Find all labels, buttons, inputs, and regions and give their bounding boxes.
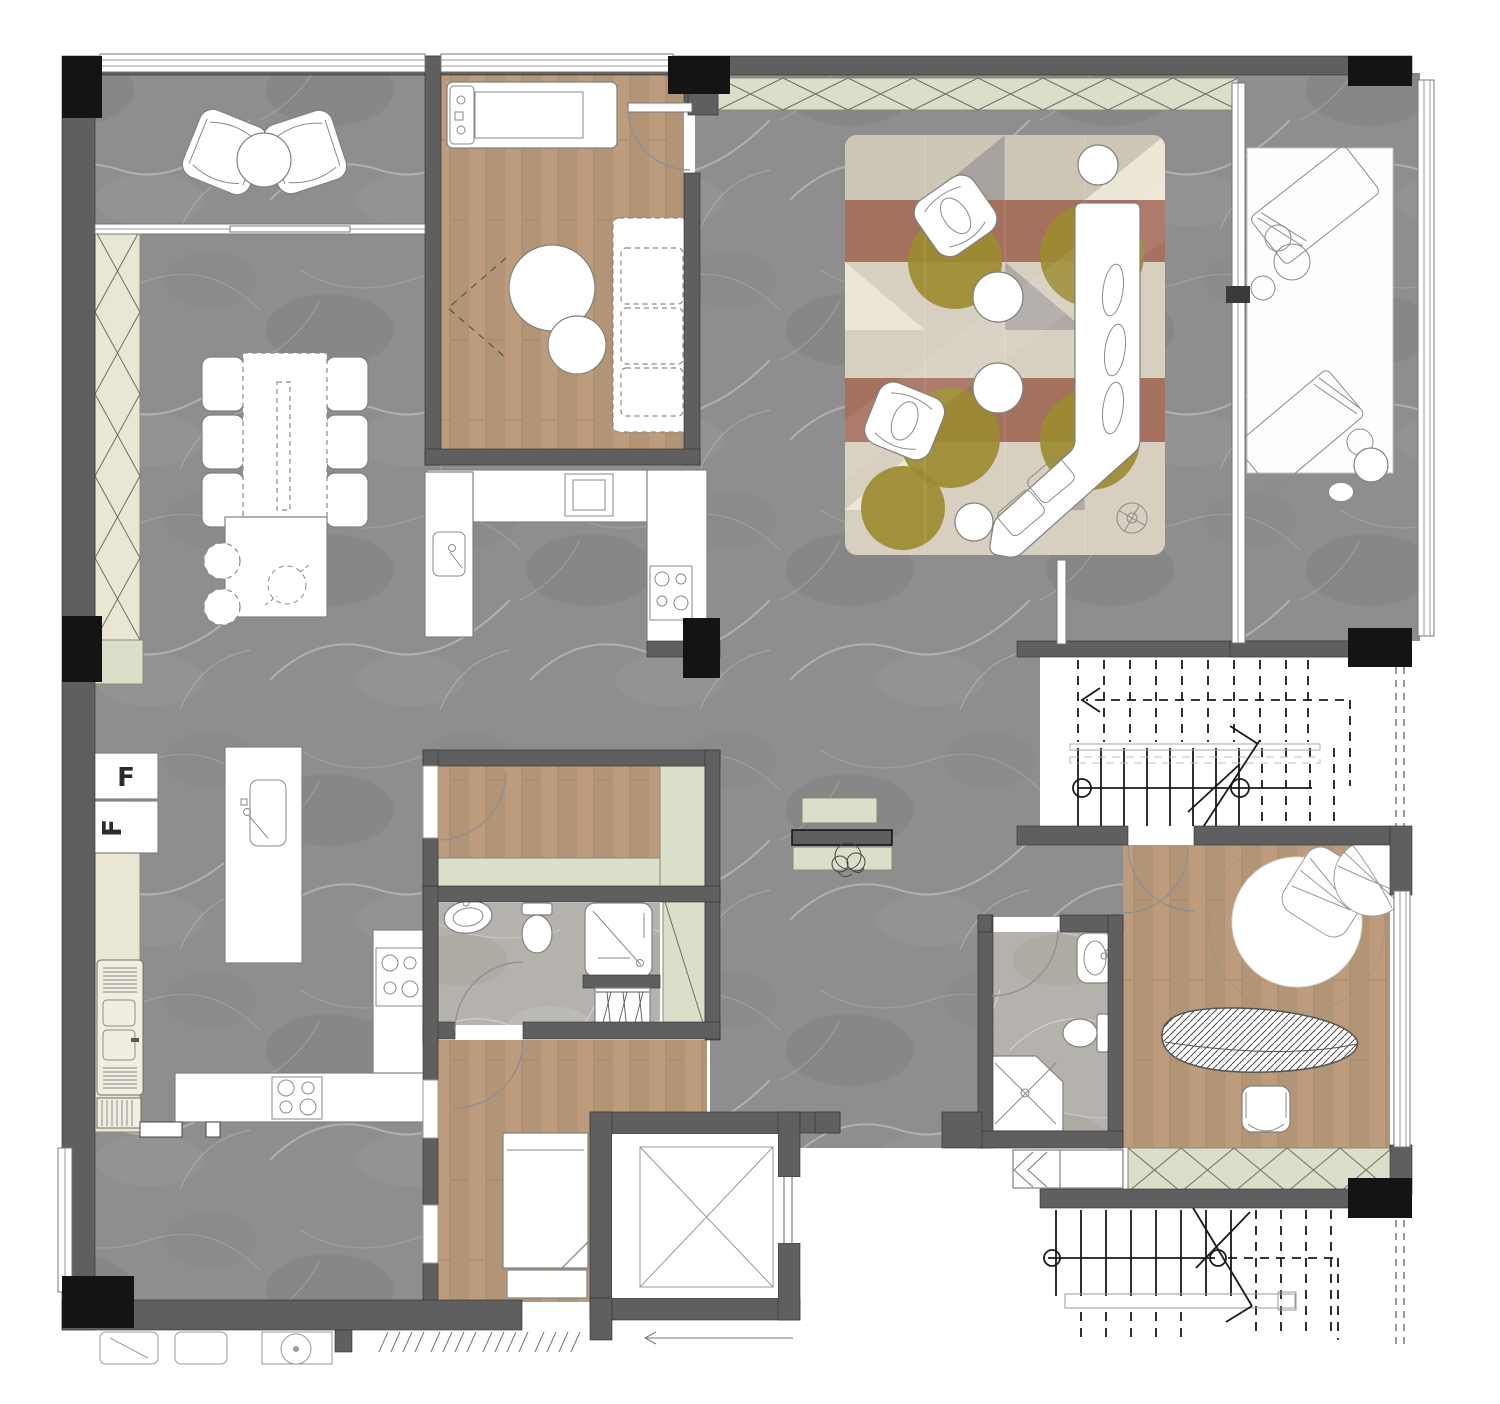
floor-plan-page: F F: [0, 0, 1500, 1404]
stool-icon: [1242, 1086, 1290, 1132]
hall-console: [792, 798, 892, 877]
window: [100, 54, 425, 72]
toilet-icon: [522, 903, 552, 953]
door-gap: [140, 1122, 182, 1137]
window: [1394, 891, 1410, 1147]
storage-strip-living-top: [718, 78, 1238, 110]
washing-machine-icon: [1013, 1150, 1123, 1188]
kitchen-island: [225, 747, 302, 963]
corner-shower-icon: [988, 1056, 1063, 1131]
fridge-freezer: F F: [94, 753, 158, 853]
window: [58, 1148, 72, 1292]
bedroom-bottom: [503, 1133, 588, 1298]
glass-screen: [1057, 560, 1066, 644]
door-gap: [423, 766, 438, 838]
balcony: [1235, 144, 1393, 501]
sofa-icon: [613, 218, 695, 432]
floor-plan-drawing: F F: [0, 0, 1500, 1404]
window: [441, 54, 673, 72]
pouf-icon: [548, 316, 606, 374]
appliance-tower: [97, 960, 143, 1128]
staircase-upper: [1040, 657, 1404, 838]
shower-icon: [585, 903, 652, 977]
staircase-lower: [1040, 1206, 1412, 1348]
fridge-label-2: F: [98, 819, 128, 837]
door-gap: [423, 1205, 438, 1263]
door-gap: [423, 1080, 438, 1138]
window: [1418, 80, 1434, 636]
treadmill-icon: [447, 82, 617, 148]
glass-partition: [95, 224, 425, 234]
door-gap: [206, 1122, 220, 1137]
fridge-label-1: F: [117, 763, 135, 793]
